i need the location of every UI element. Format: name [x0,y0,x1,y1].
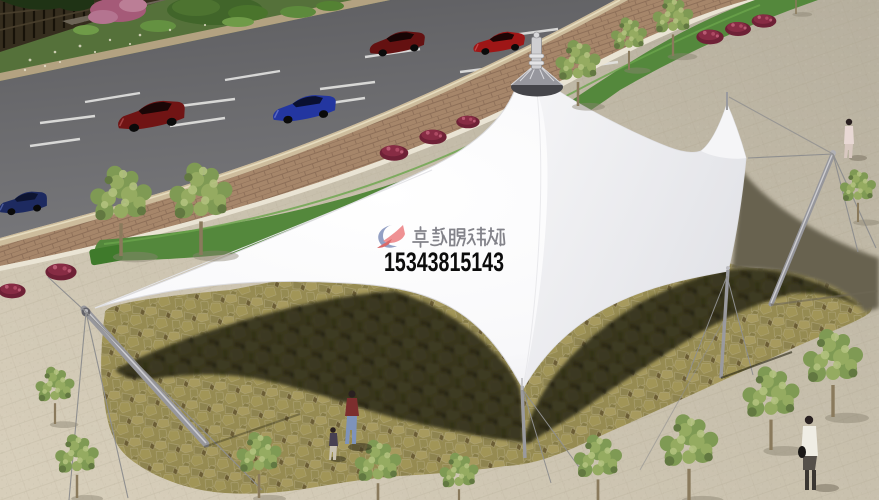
svg-text:15343815143: 15343815143 [384,247,504,277]
